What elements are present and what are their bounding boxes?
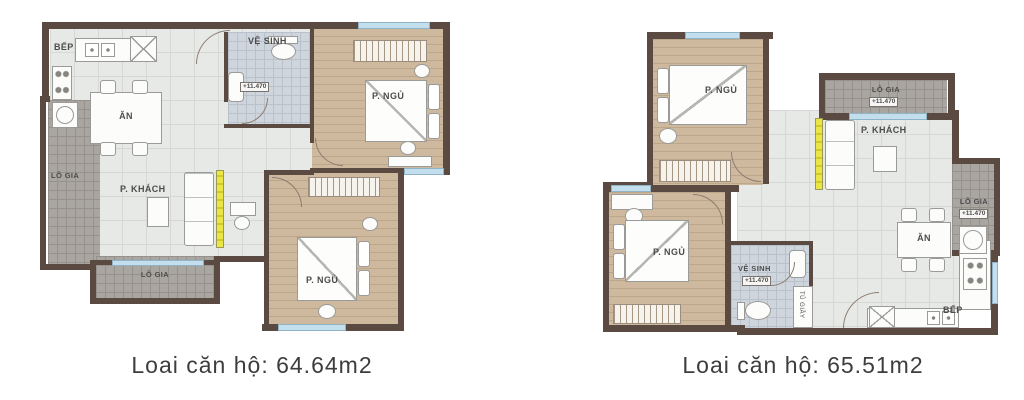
desk [230, 202, 256, 216]
bedroom1-label: P. NGỦ [705, 86, 737, 95]
loggia-right-elevation: +11.470 [959, 209, 988, 219]
wall [819, 73, 825, 118]
pillow [358, 270, 370, 296]
wall [994, 160, 1000, 256]
tv-console [216, 170, 224, 248]
bedroom1-window [685, 32, 740, 39]
desk-chair [234, 216, 250, 230]
wall [647, 32, 653, 185]
shoe-cabinet-label: TỦ GIẦY [798, 291, 804, 319]
chair [100, 80, 116, 94]
wardrobe [659, 160, 731, 182]
sink-basin [85, 43, 99, 57]
wall [264, 170, 314, 175]
side-table [414, 64, 430, 78]
floor-plan-2: TỦ GIẦY P. NGỦ P. NGỦ P. KHÁCH ĂN BẾP VỆ… [597, 10, 1009, 345]
coffee-table [147, 197, 169, 227]
washing-machine-drum [56, 106, 74, 124]
bedroom2-label: P. NGỦ [653, 248, 685, 257]
chair [929, 208, 945, 222]
living-label: P. KHÁCH [861, 126, 907, 135]
wall [603, 325, 745, 332]
plan2-caption: Loai căn hộ: 65.51m2 [597, 352, 1009, 379]
desk [388, 156, 432, 167]
dining-label: ĂN [897, 234, 951, 243]
living-window [112, 260, 204, 266]
stool [318, 304, 336, 319]
loggia-top-elevation: +11.470 [869, 97, 898, 107]
bathroom-elevation: +11.470 [240, 82, 269, 92]
plan1-caption: Loai căn hộ: 64.64m2 [28, 352, 476, 379]
side-window [404, 168, 444, 175]
pillow [657, 97, 669, 123]
wall [214, 260, 220, 304]
living-window [849, 113, 927, 120]
bathroom-label: VỆ SINH [738, 265, 771, 273]
wall [42, 22, 49, 102]
wall [40, 264, 96, 270]
sofa [825, 120, 855, 190]
toilet-bowl [745, 301, 771, 320]
pillow [428, 113, 440, 139]
pillow [657, 68, 669, 94]
bedroom2-window [611, 185, 651, 192]
washing-machine-drum [963, 230, 983, 250]
coffee-table [873, 146, 897, 172]
loggia-left-label: LÔ GIA [51, 172, 79, 180]
wall [763, 32, 769, 184]
chair [132, 80, 148, 94]
chair [132, 142, 148, 156]
floor-plan-1: BẾP ĂN VỆ SINH +11.470 P. KHÁCH P. NGỦ P… [28, 10, 476, 345]
sink-basin [927, 311, 940, 325]
pillow [613, 253, 625, 279]
wall [948, 73, 955, 118]
wall [310, 168, 402, 173]
pillow [613, 224, 625, 250]
wall [731, 241, 813, 245]
kitchen-label: BẾP [943, 306, 963, 315]
wall [823, 113, 851, 120]
wall [398, 172, 404, 328]
wall [224, 124, 310, 128]
tv-console [815, 118, 823, 190]
chair [929, 258, 945, 272]
wall [925, 113, 955, 120]
kitchen-label: BẾP [54, 43, 74, 52]
side-table [362, 217, 378, 231]
wall [725, 192, 731, 332]
wall [90, 298, 220, 304]
side-table [659, 128, 677, 144]
sofa [184, 172, 214, 246]
loggia-bottom-label: LÔ GIA [96, 271, 214, 279]
sink-basin [101, 43, 115, 57]
living-label: P. KHÁCH [120, 185, 166, 194]
stove-burners [963, 258, 987, 290]
chair [901, 208, 917, 222]
kitchen-window [992, 262, 998, 304]
desk-chair [400, 141, 416, 155]
wall [310, 28, 314, 143]
dining-label: ĂN [90, 112, 162, 121]
wall [952, 158, 1000, 164]
bedroom1-window [358, 22, 430, 29]
wall [603, 182, 609, 332]
loggia-top-label: LÔ GIA [825, 86, 947, 94]
bedroom2-window [278, 324, 346, 331]
wall [40, 96, 46, 270]
bed [365, 80, 427, 142]
bed [669, 65, 747, 125]
chair [901, 258, 917, 272]
bedroom1-label: P. NGỦ [372, 92, 404, 101]
wardrobe [353, 40, 427, 62]
wall [264, 170, 269, 328]
stove-burners [52, 66, 72, 100]
wardrobe [308, 177, 380, 197]
bed [297, 237, 357, 301]
toilet-tank [737, 302, 745, 320]
bathroom-elevation: +11.470 [742, 276, 771, 286]
chair [100, 142, 116, 156]
wardrobe [613, 304, 681, 324]
wall [214, 256, 268, 262]
pillow [358, 241, 370, 267]
pillow [428, 84, 440, 110]
wall [737, 328, 998, 335]
fridge [130, 36, 157, 62]
loggia-right-label: LÔ GIA [952, 198, 996, 206]
bedroom2-label: P. NGỦ [306, 276, 338, 285]
wall [819, 73, 955, 80]
bathroom-label: VỆ SINH [248, 37, 287, 46]
wall [443, 22, 450, 175]
